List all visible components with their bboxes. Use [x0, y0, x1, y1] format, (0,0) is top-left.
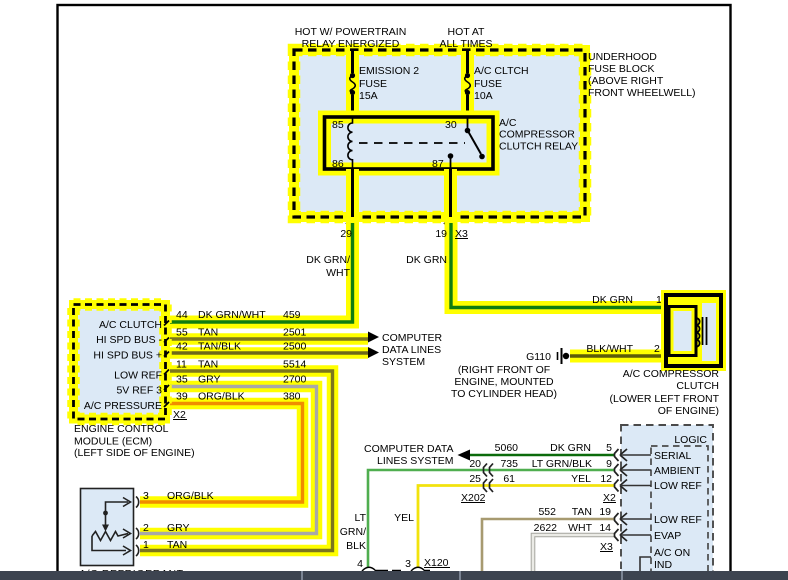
- svg-text:FUSE: FUSE: [474, 78, 502, 90]
- svg-text:42: 42: [176, 341, 188, 353]
- svg-text:FUSE BLOCK: FUSE BLOCK: [588, 63, 655, 75]
- svg-text:TAN: TAN: [572, 506, 592, 518]
- svg-text:LOGIC: LOGIC: [674, 434, 707, 446]
- svg-text:A/C: A/C: [499, 117, 517, 129]
- svg-text:ORG/BLK: ORG/BLK: [198, 391, 245, 403]
- svg-text:LOW REF: LOW REF: [654, 480, 702, 492]
- svg-text:A/C CLUTCH: A/C CLUTCH: [99, 319, 162, 331]
- svg-text:GRN/: GRN/: [340, 526, 366, 538]
- svg-text:FUSE: FUSE: [359, 78, 387, 90]
- svg-text:GRY: GRY: [167, 522, 190, 534]
- svg-text:2700: 2700: [283, 374, 307, 386]
- svg-text:5514: 5514: [283, 359, 307, 371]
- svg-text:YEL: YEL: [394, 512, 414, 524]
- svg-text:552: 552: [538, 506, 556, 518]
- svg-text:5V REF 3: 5V REF 3: [116, 385, 162, 397]
- svg-text:LOW REF: LOW REF: [114, 370, 162, 382]
- svg-text:4: 4: [357, 558, 363, 570]
- svg-text:2500: 2500: [283, 341, 307, 353]
- svg-text:MODULE (ECM): MODULE (ECM): [74, 436, 152, 448]
- svg-text:459: 459: [283, 309, 301, 321]
- svg-text:86: 86: [332, 158, 344, 170]
- svg-text:A/C CLTCH: A/C CLTCH: [474, 65, 529, 77]
- svg-text:19: 19: [435, 228, 447, 240]
- svg-text:COMPUTER: COMPUTER: [382, 332, 443, 344]
- svg-text:44: 44: [176, 309, 188, 321]
- svg-text:10A: 10A: [474, 90, 493, 102]
- svg-text:15A: 15A: [359, 90, 378, 102]
- svg-text:HI SPD BUS -: HI SPD BUS -: [96, 334, 162, 346]
- svg-text:A/C COMPRESSOR: A/C COMPRESSOR: [623, 368, 720, 380]
- svg-text:61: 61: [503, 473, 515, 485]
- svg-text:9: 9: [606, 458, 612, 470]
- svg-text:2622: 2622: [534, 522, 558, 534]
- svg-text:3: 3: [143, 490, 149, 502]
- svg-text:TAN/BLK: TAN/BLK: [198, 341, 241, 353]
- svg-text:TO CYLINDER HEAD): TO CYLINDER HEAD): [451, 388, 557, 400]
- svg-text:DK GRN: DK GRN: [406, 254, 447, 266]
- svg-text:HOT AT: HOT AT: [448, 26, 486, 38]
- svg-text:55: 55: [176, 327, 188, 339]
- svg-text:29: 29: [340, 228, 352, 240]
- svg-text:GRY: GRY: [198, 374, 221, 386]
- svg-text:LT: LT: [355, 512, 367, 524]
- svg-text:2: 2: [654, 343, 660, 355]
- svg-text:COMPUTER DATA: COMPUTER DATA: [364, 443, 453, 455]
- svg-text:SERIAL: SERIAL: [654, 450, 692, 462]
- svg-text:735: 735: [500, 458, 518, 470]
- svg-text:12: 12: [600, 473, 612, 485]
- svg-text:CLUTCH: CLUTCH: [676, 380, 719, 392]
- svg-text:14: 14: [599, 522, 611, 534]
- svg-text:20: 20: [469, 458, 481, 470]
- svg-text:ENGINE, MOUNTED: ENGINE, MOUNTED: [454, 376, 554, 388]
- svg-text:WHT: WHT: [326, 267, 350, 279]
- svg-text:UNDERHOOD: UNDERHOOD: [588, 51, 657, 63]
- svg-text:TAN: TAN: [198, 359, 218, 371]
- svg-text:5060: 5060: [495, 442, 519, 454]
- svg-text:BLK: BLK: [346, 540, 366, 552]
- svg-text:(ABOVE RIGHT: (ABOVE RIGHT: [588, 75, 664, 87]
- svg-text:WHT: WHT: [568, 522, 592, 534]
- svg-text:LINES SYSTEM: LINES SYSTEM: [377, 455, 453, 467]
- svg-text:39: 39: [176, 391, 188, 403]
- svg-text:OF ENGINE): OF ENGINE): [658, 405, 719, 417]
- svg-text:G110: G110: [526, 351, 551, 363]
- svg-text:BLK/WHT: BLK/WHT: [586, 343, 633, 355]
- svg-text:YEL: YEL: [571, 473, 591, 485]
- svg-text:TAN: TAN: [167, 539, 187, 551]
- svg-text:87: 87: [432, 158, 444, 170]
- svg-text:EVAP: EVAP: [654, 530, 681, 542]
- svg-text:A/C PRESSURE: A/C PRESSURE: [84, 400, 162, 412]
- svg-text:11: 11: [176, 359, 187, 371]
- svg-text:380: 380: [283, 391, 301, 403]
- svg-text:A/C ON: A/C ON: [654, 547, 690, 559]
- svg-text:3: 3: [405, 558, 411, 570]
- svg-text:COMPRESSOR: COMPRESSOR: [499, 129, 575, 141]
- svg-text:2: 2: [143, 522, 149, 534]
- svg-text:TAN: TAN: [198, 327, 218, 339]
- svg-text:FRONT WHEELWELL): FRONT WHEELWELL): [588, 87, 696, 99]
- svg-text:DATA LINES: DATA LINES: [382, 344, 441, 356]
- svg-text:HOT W/ POWERTRAIN: HOT W/ POWERTRAIN: [295, 26, 407, 38]
- svg-text:HI SPD BUS +: HI SPD BUS +: [93, 350, 162, 362]
- svg-text:RELAY ENERGIZED: RELAY ENERGIZED: [302, 38, 400, 50]
- svg-text:AMBIENT: AMBIENT: [654, 465, 701, 477]
- svg-text:19: 19: [599, 506, 611, 518]
- svg-text:EMISSION 2: EMISSION 2: [359, 65, 419, 77]
- svg-text:SYSTEM: SYSTEM: [382, 356, 425, 368]
- svg-text:IND: IND: [654, 559, 673, 571]
- svg-text:85: 85: [332, 119, 344, 131]
- svg-text:30: 30: [445, 119, 457, 131]
- svg-text:DK GRN/: DK GRN/: [306, 254, 350, 266]
- svg-text:CLUTCH RELAY: CLUTCH RELAY: [499, 141, 578, 153]
- svg-text:(RIGHT FRONT OF: (RIGHT FRONT OF: [458, 364, 550, 376]
- svg-text:DK GRN: DK GRN: [592, 294, 633, 306]
- svg-text:DK GRN/WHT: DK GRN/WHT: [198, 309, 266, 321]
- svg-text:ORG/BLK: ORG/BLK: [167, 490, 214, 502]
- svg-text:25: 25: [469, 473, 481, 485]
- svg-text:35: 35: [176, 374, 188, 386]
- svg-text:(LOWER LEFT FRONT: (LOWER LEFT FRONT: [610, 393, 720, 405]
- svg-text:2501: 2501: [283, 327, 307, 339]
- svg-text:LT GRN/BLK: LT GRN/BLK: [532, 458, 592, 470]
- svg-text:1: 1: [143, 539, 149, 551]
- svg-text:ALL TIMES: ALL TIMES: [439, 38, 492, 50]
- svg-text:(LEFT SIDE OF ENGINE): (LEFT SIDE OF ENGINE): [74, 447, 195, 459]
- svg-text:5: 5: [606, 442, 612, 454]
- svg-text:DK GRN: DK GRN: [550, 442, 591, 454]
- svg-text:ENGINE CONTROL: ENGINE CONTROL: [74, 423, 169, 435]
- svg-text:LOW REF: LOW REF: [654, 514, 702, 526]
